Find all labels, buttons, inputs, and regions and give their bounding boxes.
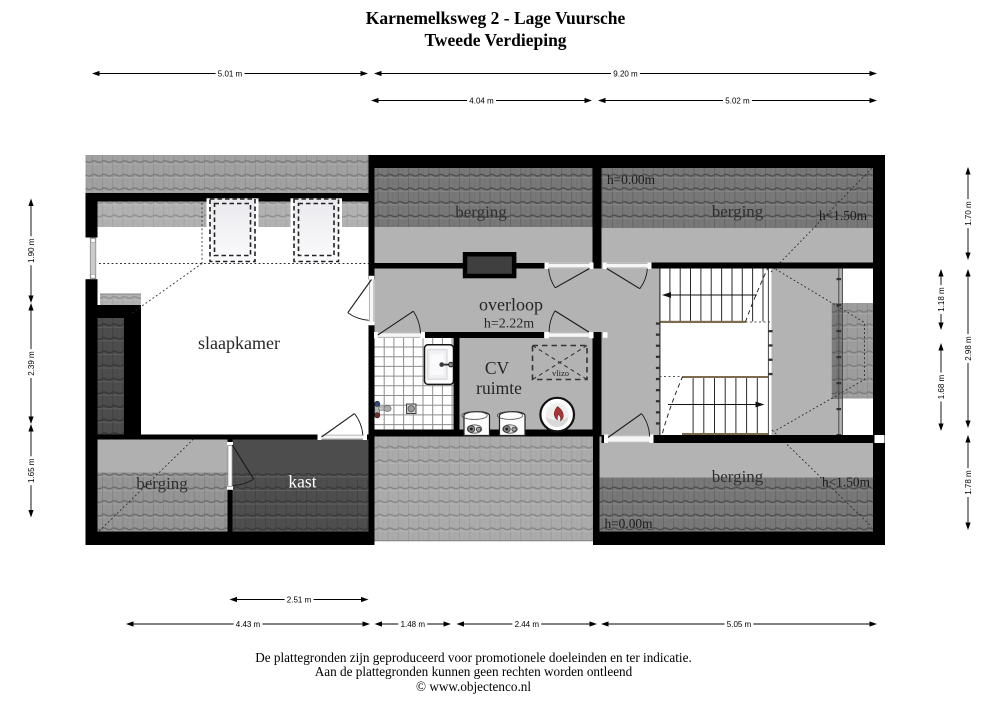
svg-text:CV: CV [485,358,510,378]
svg-text:2.51 m: 2.51 m [287,596,312,605]
svg-text:4.43 m: 4.43 m [236,620,261,629]
svg-text:1.65 m: 1.65 m [27,458,36,483]
svg-text:berging: berging [455,203,507,222]
svg-text:5.01 m: 5.01 m [218,70,243,79]
svg-text:4.04 m: 4.04 m [469,97,494,106]
svg-text:Karnemelksweg 2 - Lage Vuursch: Karnemelksweg 2 - Lage Vuursche [366,8,626,28]
svg-text:Aan de plattegronden kunnen ge: Aan de plattegronden kunnen geen rechten… [315,664,633,679]
svg-text:h=2.22m: h=2.22m [484,317,534,332]
svg-text:Tweede Verdieping: Tweede Verdieping [424,30,566,50]
svg-text:1.18 m: 1.18 m [937,287,946,312]
svg-text:2.44 m: 2.44 m [515,620,540,629]
svg-text:vlizo: vlizo [552,368,569,378]
svg-text:1.70 m: 1.70 m [964,201,973,226]
svg-text:1.68 m: 1.68 m [937,374,946,399]
svg-text:berging: berging [712,202,764,221]
svg-text:kast: kast [288,472,316,492]
svg-text:2.39 m: 2.39 m [27,351,36,376]
svg-text:1.48 m: 1.48 m [401,620,426,629]
svg-text:berging: berging [136,474,188,493]
svg-text:berging: berging [712,467,764,486]
svg-text:1.90 m: 1.90 m [27,238,36,263]
svg-text:h<1.50m: h<1.50m [822,475,871,490]
svg-text:9.20 m: 9.20 m [613,70,638,79]
svg-text:De plattegronden zijn geproduc: De plattegronden zijn geproduceerd voor … [255,650,692,665]
svg-text:h=0.00m: h=0.00m [604,516,653,531]
svg-text:5.05 m: 5.05 m [727,620,752,629]
svg-text:5.02 m: 5.02 m [725,97,750,106]
svg-text:2.98 m: 2.98 m [964,336,973,361]
svg-text:h=0.00m: h=0.00m [607,172,656,187]
svg-text:overloop: overloop [479,295,543,315]
svg-text:slaapkamer: slaapkamer [198,333,280,353]
svg-text:© www.objectenco.nl: © www.objectenco.nl [416,679,531,694]
svg-text:ruimte: ruimte [476,378,522,398]
svg-text:h<1.50m: h<1.50m [819,208,868,223]
svg-text:1.78 m: 1.78 m [964,470,973,495]
